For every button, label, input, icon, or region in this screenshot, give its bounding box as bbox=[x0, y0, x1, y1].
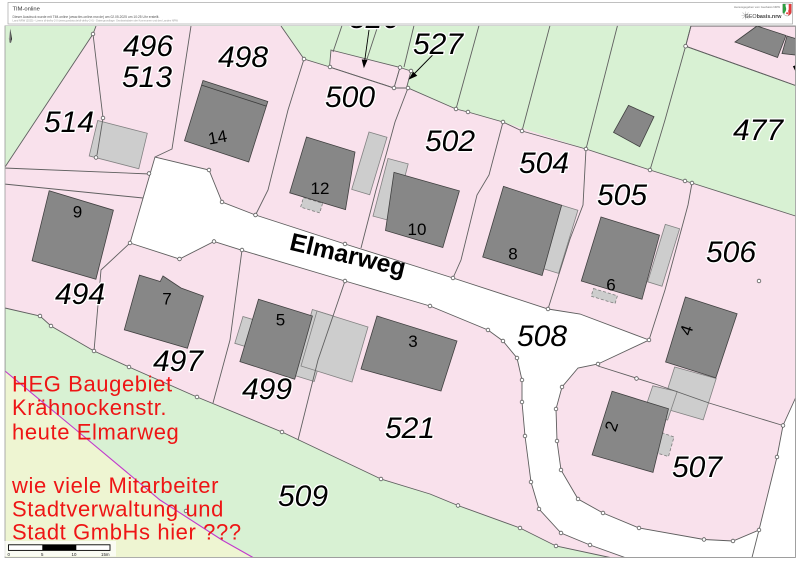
svg-text:10: 10 bbox=[408, 220, 427, 239]
svg-text:477: 477 bbox=[733, 114, 784, 147]
svg-text:507: 507 bbox=[672, 451, 723, 484]
svg-text:506: 506 bbox=[706, 236, 756, 269]
svg-text:521: 521 bbox=[385, 412, 435, 445]
svg-text:500: 500 bbox=[325, 81, 375, 114]
svg-text:505: 505 bbox=[597, 179, 647, 212]
svg-text:513: 513 bbox=[122, 61, 172, 94]
svg-text:Stadtverwaltung und: Stadtverwaltung und bbox=[12, 497, 224, 522]
svg-text:12: 12 bbox=[311, 179, 330, 198]
svg-text:7: 7 bbox=[162, 290, 171, 309]
svg-text:508: 508 bbox=[517, 320, 567, 353]
svg-text:HEG Baugebiet: HEG Baugebiet bbox=[12, 372, 173, 397]
svg-text:GEObasis.nrw: GEObasis.nrw bbox=[745, 14, 783, 20]
svg-text:494: 494 bbox=[55, 278, 105, 311]
svg-text:5: 5 bbox=[276, 311, 285, 330]
svg-text:509: 509 bbox=[278, 480, 328, 513]
svg-text:10: 10 bbox=[72, 552, 77, 557]
svg-text:heute Elmarweg: heute Elmarweg bbox=[12, 420, 179, 445]
svg-text:9: 9 bbox=[73, 203, 82, 222]
svg-text:514: 514 bbox=[44, 106, 94, 139]
svg-text:499: 499 bbox=[242, 373, 292, 406]
svg-text:498: 498 bbox=[218, 41, 268, 74]
svg-text:Land NRW (2025) - Lizenz dl-de: Land NRW (2025) - Lizenz dl-de/by-2-0 (w… bbox=[13, 19, 179, 23]
svg-text:TIM-online: TIM-online bbox=[13, 7, 40, 13]
svg-text:8: 8 bbox=[508, 245, 517, 264]
svg-text:Krähnockenstr.: Krähnockenstr. bbox=[12, 395, 167, 420]
svg-text:3: 3 bbox=[408, 332, 417, 351]
svg-text:wie viele Mitarbeiter: wie viele Mitarbeiter bbox=[11, 473, 219, 498]
svg-text:Dieser Ausdruck wurde mit TIM-: Dieser Ausdruck wurde mit TIM-online (ww… bbox=[13, 15, 160, 19]
svg-text:Stadt GmbHs hier ???: Stadt GmbHs hier ??? bbox=[12, 520, 242, 545]
svg-text:Herausgegeben vom Geobasis NRW: Herausgegeben vom Geobasis NRW bbox=[734, 5, 780, 9]
svg-text:15m: 15m bbox=[101, 552, 110, 557]
svg-text:14: 14 bbox=[207, 127, 229, 149]
svg-text:504: 504 bbox=[519, 147, 569, 180]
svg-text:6: 6 bbox=[606, 276, 615, 295]
svg-text:496: 496 bbox=[123, 30, 173, 63]
svg-text:527: 527 bbox=[413, 28, 464, 61]
svg-text:502: 502 bbox=[425, 125, 475, 158]
